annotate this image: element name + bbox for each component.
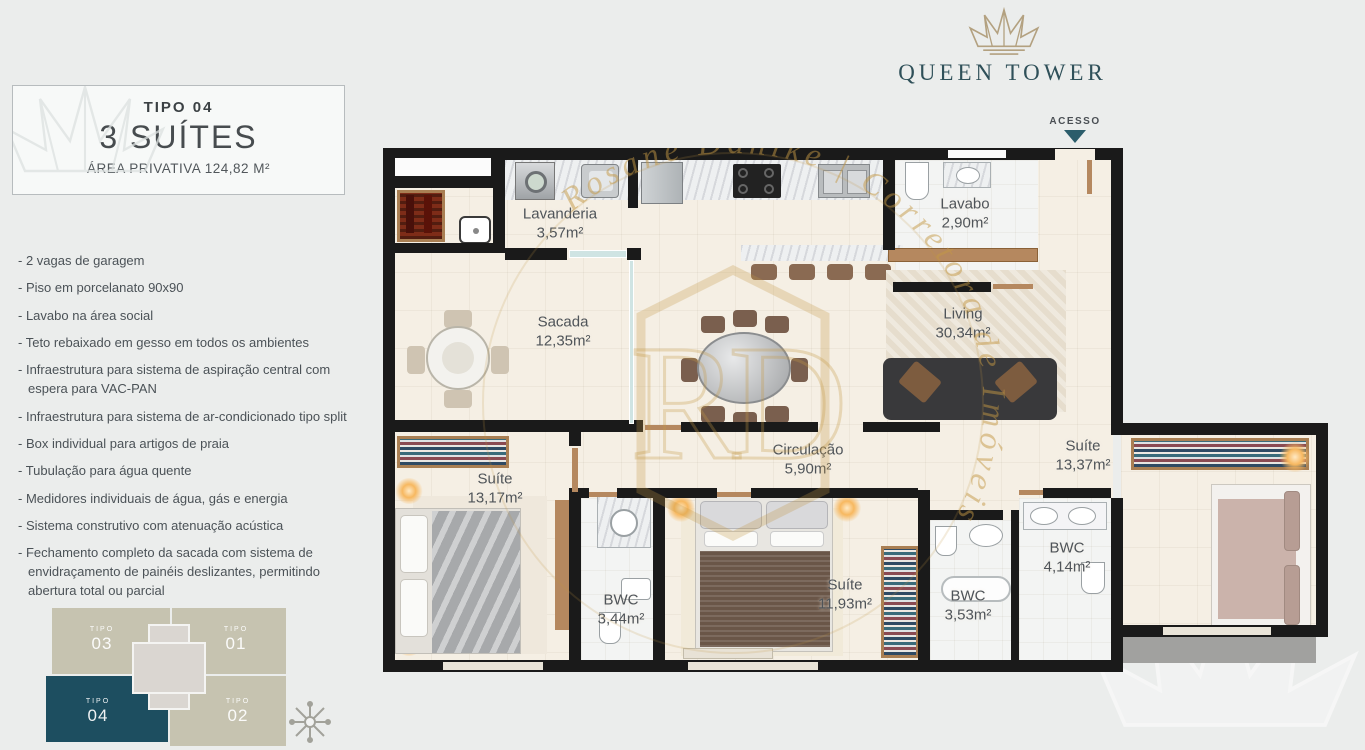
sofa — [883, 358, 1057, 420]
room-area: 2,90m² — [942, 214, 989, 231]
room-area: 3,57m² — [537, 224, 584, 241]
feature-item: Box individual para artigos de praia — [18, 435, 358, 454]
keyplan-tipo: TIPO — [224, 626, 248, 633]
dining-chair — [681, 358, 698, 382]
room-name: Circulação — [773, 441, 844, 458]
wall-segment — [863, 422, 940, 432]
bed-double — [1211, 484, 1311, 634]
room-area: 5,90m² — [785, 460, 832, 477]
feature-item: Infraestrutura para sistema de aspiração… — [18, 361, 358, 399]
keyplan-tipo: TIPO — [226, 698, 250, 705]
dining-chair — [765, 406, 789, 423]
bed-double — [695, 496, 833, 652]
wall-segment — [918, 490, 930, 660]
keyplan: TIPO 03 TIPO 01 TIPO 04 TIPO 02 — [40, 598, 340, 750]
nightstand-lamp — [1279, 442, 1311, 472]
wall-segment — [1111, 423, 1328, 435]
access-arrow-icon — [1064, 130, 1086, 143]
toilet — [935, 526, 957, 556]
entry-door-opening — [1055, 149, 1095, 160]
shower — [597, 496, 651, 548]
nightstand-lamp — [667, 494, 695, 522]
wall-segment — [493, 188, 505, 248]
wall-segment — [893, 282, 991, 292]
room-name: BWC — [951, 587, 986, 604]
card-crown-watermark-icon — [12, 85, 175, 195]
closet-wardrobe — [881, 546, 919, 658]
dining-chair — [791, 358, 808, 382]
room-label-lavanderia: Lavanderia 3,57m² — [523, 205, 597, 243]
balcony-ledge — [1123, 637, 1316, 663]
room-label-suite-3: Suíte 13,37m² — [1055, 437, 1110, 475]
balcony-table — [426, 326, 490, 390]
balcony-glass-wall — [629, 260, 634, 424]
room-label-sacada: Sacada 12,35m² — [535, 313, 590, 351]
barbecue-grill — [397, 190, 445, 242]
wall-segment — [505, 248, 567, 260]
double-vanity — [1023, 502, 1107, 530]
room-area: 11,93m² — [818, 595, 872, 612]
kitchen-sink — [818, 164, 870, 198]
gourmet-sink — [459, 216, 491, 244]
entry-door — [1087, 160, 1092, 194]
wall-segment — [383, 243, 505, 253]
room-name: Suíte — [827, 576, 862, 593]
compass-icon — [288, 700, 332, 744]
wall-segment — [883, 158, 895, 250]
access-label: ACESSO — [1040, 116, 1110, 127]
door — [1019, 490, 1043, 495]
keyplan-label-03: TIPO 03 — [90, 626, 114, 654]
bar-stool — [789, 264, 815, 280]
cooktop — [733, 164, 781, 198]
room-label-bwc-1: BWC 3,44m² — [598, 591, 645, 629]
wardrobe — [397, 436, 509, 468]
washing-machine — [515, 162, 555, 200]
feature-item: Lavabo na área social — [18, 307, 358, 326]
keyplan-tipo: TIPO — [90, 626, 114, 633]
keyplan-label-04: TIPO 04 — [86, 698, 110, 726]
room-name: BWC — [604, 591, 639, 608]
room-area: 12,35m² — [535, 332, 590, 349]
room-area: 4,14m² — [1044, 558, 1091, 575]
wall-segment — [383, 148, 395, 672]
feature-item: Fechamento completo da sacada com sistem… — [18, 544, 358, 601]
wall-segment — [681, 422, 818, 432]
fridge — [641, 162, 683, 204]
wall-segment — [653, 498, 665, 660]
keyplan-num: 03 — [90, 634, 114, 654]
floorplan: Lavanderia 3,57m² Lavabo 2,90m² Living 3… — [383, 148, 1333, 678]
brand-name: QUEEN TOWER — [880, 60, 1125, 86]
wall-segment — [1316, 423, 1328, 637]
dining-table — [697, 332, 791, 404]
door — [589, 492, 617, 497]
wall-segment — [617, 488, 717, 498]
bedroom-cabinet — [683, 648, 773, 659]
dining-chair — [701, 316, 725, 333]
keyplan-label-02: TIPO 02 — [226, 698, 250, 726]
wall-segment — [569, 498, 581, 660]
room-name: Living — [943, 305, 982, 322]
room-label-circulacao: Circulação 5,90m² — [773, 441, 844, 479]
features-list: 2 vagas de garagem Piso em porcelanato 9… — [18, 252, 358, 609]
feature-item: 2 vagas de garagem — [18, 252, 358, 271]
dresser — [555, 500, 569, 630]
keyplan-num: 02 — [226, 706, 250, 726]
laundry-tank — [581, 164, 619, 198]
window — [395, 158, 491, 176]
door — [993, 284, 1033, 289]
dining-chair — [701, 406, 725, 423]
wall-segment — [1011, 510, 1019, 660]
nightstand-lamp — [395, 478, 423, 504]
wall-segment — [1111, 148, 1123, 435]
nightstand-lamp — [833, 494, 861, 522]
dining-chair — [765, 316, 789, 333]
room-name: Lavanderia — [523, 205, 597, 222]
keyplan-core — [134, 644, 204, 692]
room-name: Sacada — [538, 313, 589, 330]
room-label-living: Living 30,34m² — [935, 305, 990, 343]
wall-segment — [383, 420, 643, 432]
keyplan-num: 01 — [224, 634, 248, 654]
feature-item: Teto rebaixado em gesso em todos os ambi… — [18, 334, 358, 353]
bathroom-sink — [969, 524, 1003, 547]
door — [572, 448, 578, 492]
feature-item: Medidores individuais de água, gás e ene… — [18, 490, 358, 509]
room-label-bwc-2: BWC 3,53m² — [945, 587, 992, 625]
balcony-chair — [407, 346, 425, 374]
crown-logo-icon — [962, 6, 1046, 58]
room-label-suite-2: Suíte 11,93m² — [818, 576, 872, 614]
page: { "brand": { "name": "QUEEN TOWER", "cro… — [0, 0, 1365, 750]
room-area: 3,53m² — [945, 606, 992, 623]
bed-double — [395, 508, 521, 654]
window — [1163, 627, 1271, 635]
keyplan-label-01: TIPO 01 — [224, 626, 248, 654]
wall-segment — [1111, 498, 1123, 672]
wall-segment — [569, 432, 581, 446]
feature-item: Piso em porcelanato 90x90 — [18, 279, 358, 298]
window — [443, 662, 543, 670]
balcony-chair — [444, 390, 472, 408]
feature-item: Infraestrutura para sistema de ar-condic… — [18, 408, 358, 427]
toilet — [905, 162, 929, 200]
room-name: Lavabo — [940, 195, 989, 212]
room-area: 13,37m² — [1055, 456, 1110, 473]
room-label-bwc-3: BWC 4,14m² — [1044, 539, 1091, 577]
balcony-chair — [491, 346, 509, 374]
feature-item: Tubulação para água quente — [18, 462, 358, 481]
keyplan-num: 04 — [86, 706, 110, 726]
window — [948, 150, 1006, 158]
feature-item: Sistema construtivo com atenuação acústi… — [18, 517, 358, 536]
room-label-lavabo: Lavabo 2,90m² — [940, 195, 989, 233]
room-name: Suíte — [1065, 437, 1100, 454]
wall-segment — [628, 156, 638, 208]
sideboard — [888, 248, 1038, 262]
wall-segment — [751, 488, 918, 498]
dining-chair — [733, 310, 757, 327]
keyplan-tipo: TIPO — [86, 698, 110, 705]
room-label-suite-1: Suíte 13,17m² — [467, 470, 522, 508]
door — [645, 425, 681, 430]
kitchen-island — [741, 245, 903, 261]
bar-stool — [751, 264, 777, 280]
wall-segment — [627, 248, 641, 260]
room-name: Suíte — [477, 470, 512, 487]
sliding-glass-door — [569, 250, 627, 258]
lavabo-sink — [943, 162, 991, 188]
room-area: 30,34m² — [935, 324, 990, 341]
bar-stool — [827, 264, 853, 280]
wall-segment — [1043, 488, 1111, 498]
room-area: 3,44m² — [598, 610, 645, 627]
wall-segment — [493, 148, 1123, 160]
room-area: 13,17m² — [467, 489, 522, 506]
window — [688, 662, 818, 670]
wall-segment — [930, 510, 1003, 520]
door — [717, 492, 751, 497]
room-name: BWC — [1050, 539, 1085, 556]
unit-card: TIPO 04 3 SUÍTES ÁREA PRIVATIVA 124,82 M… — [12, 85, 345, 195]
